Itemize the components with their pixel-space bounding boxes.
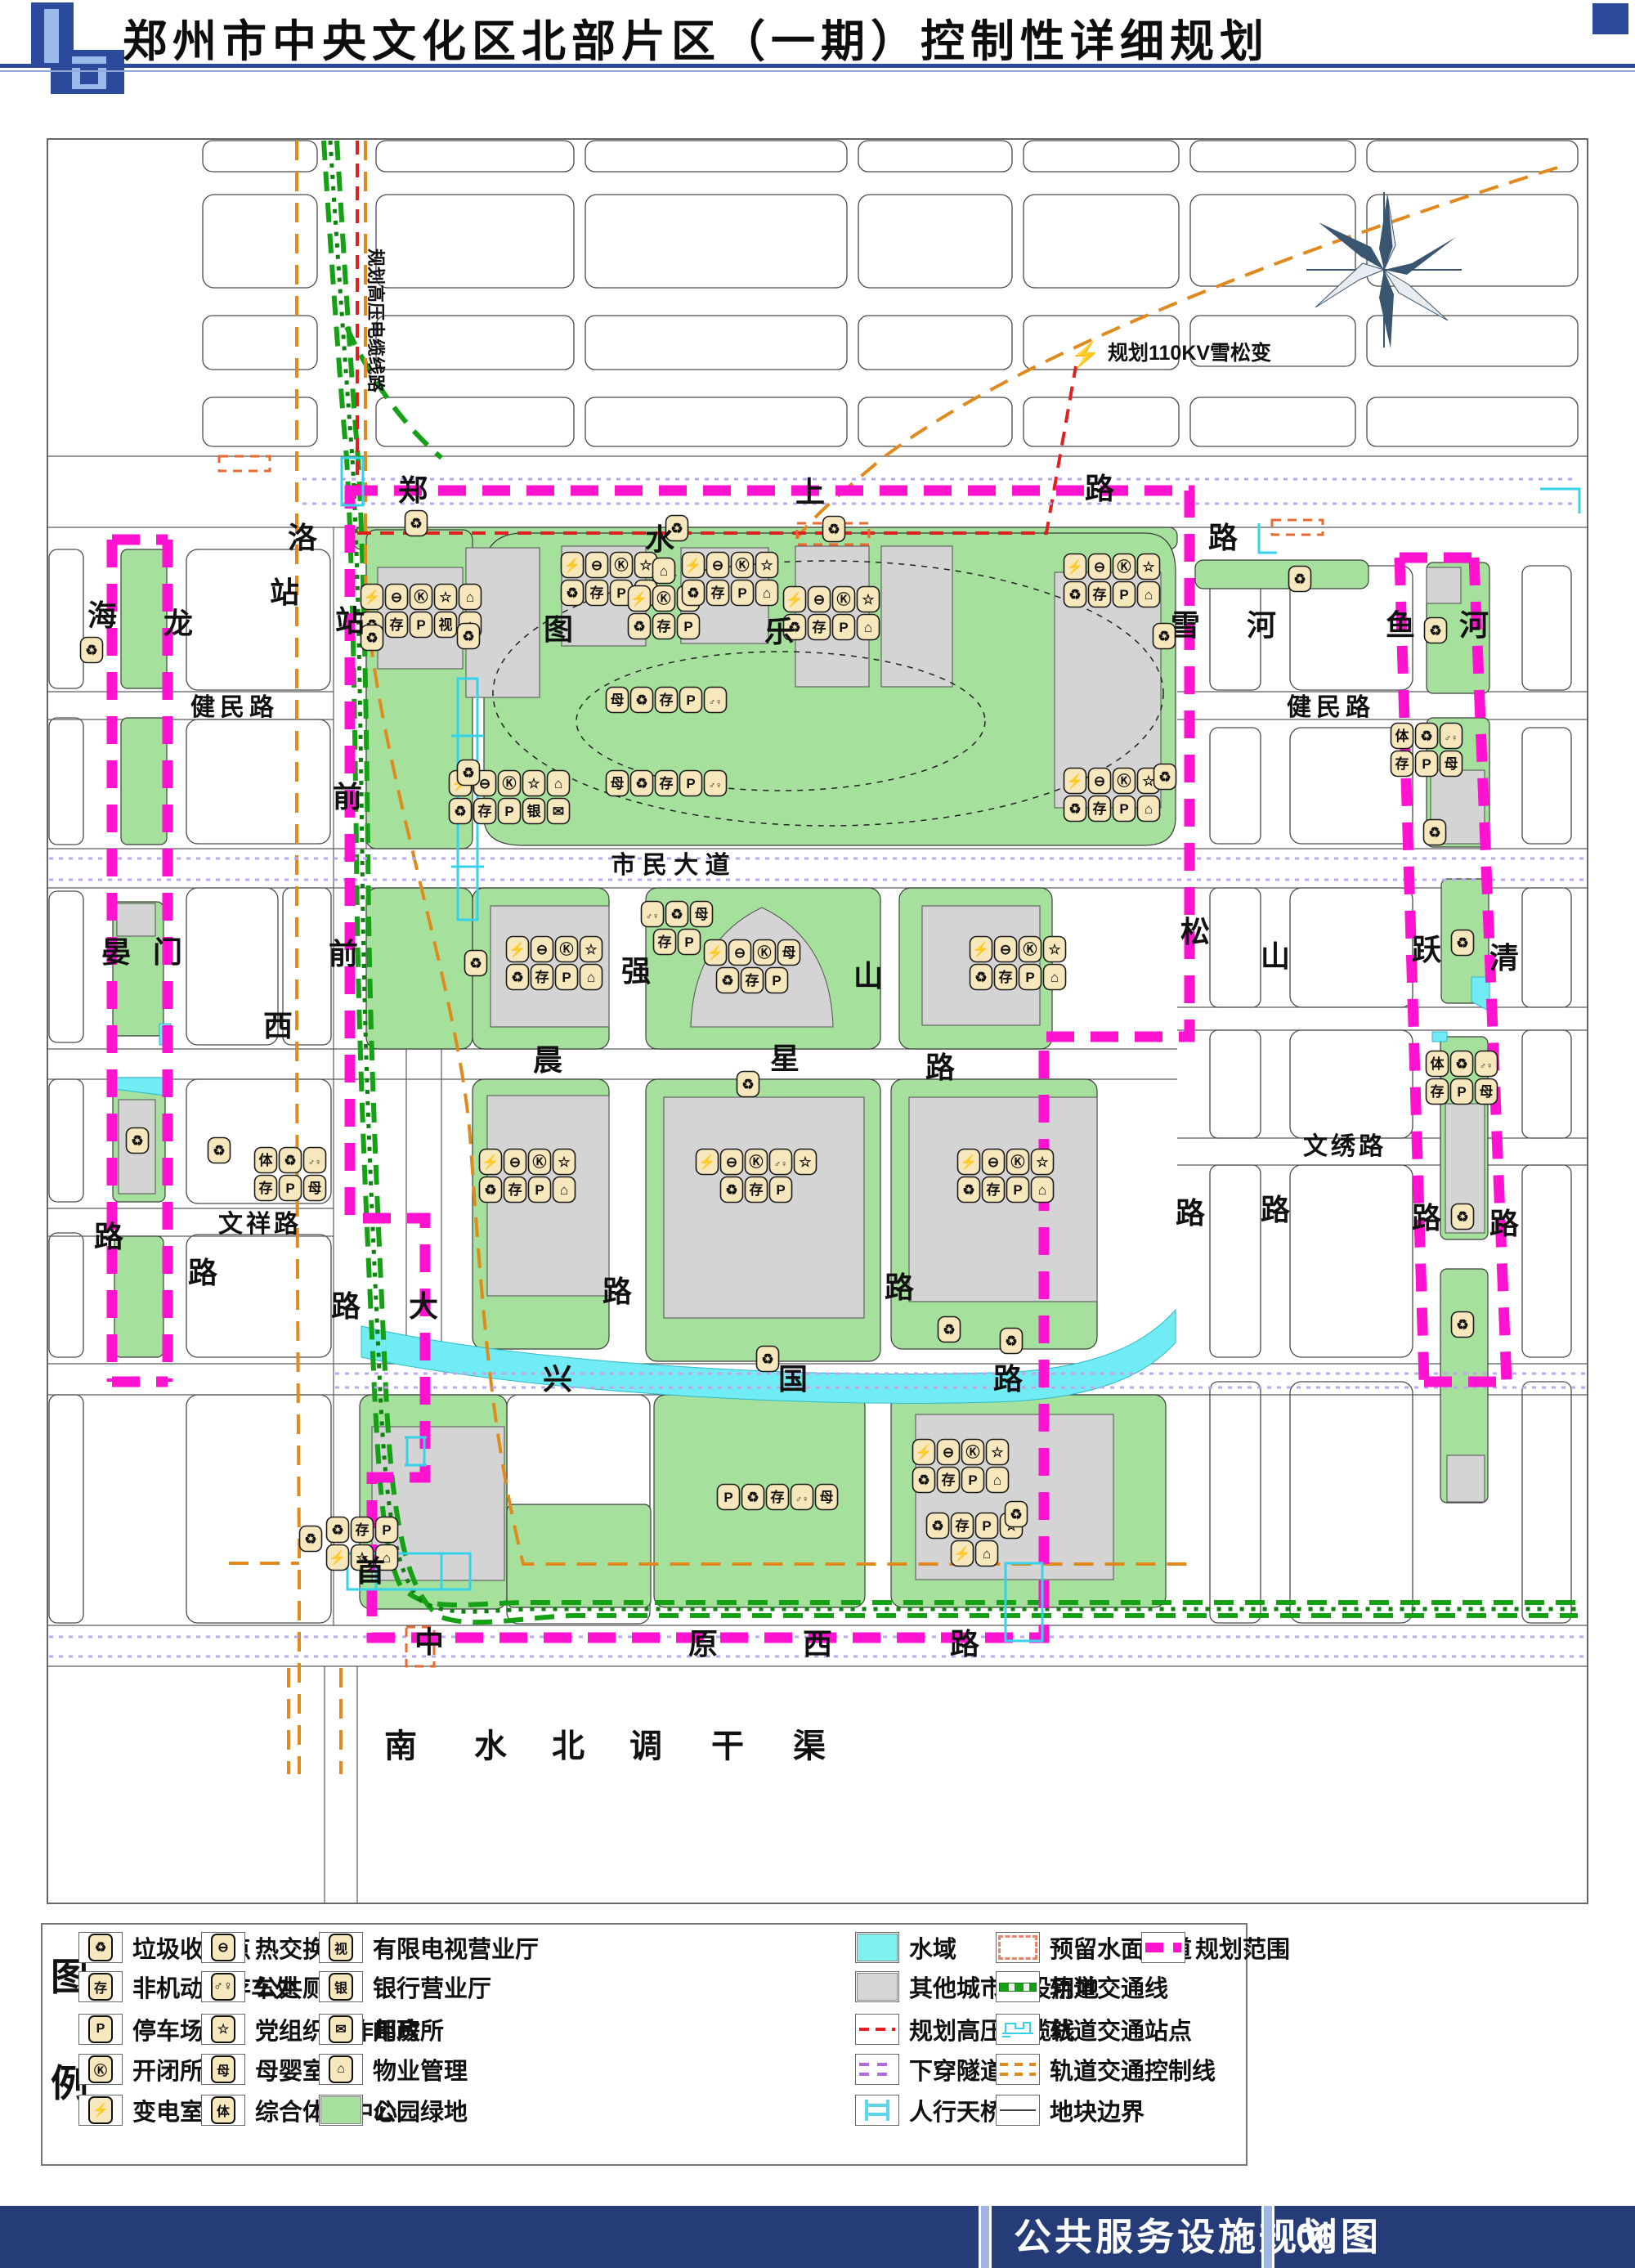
svg-text:♻: ♻ xyxy=(962,1182,974,1198)
svg-text:♻: ♻ xyxy=(635,693,647,708)
svg-text:P: P xyxy=(723,1490,732,1505)
svg-text:⚡: ⚡ xyxy=(706,944,723,961)
legend-symbol-yin: 银 xyxy=(319,1971,363,2002)
svg-text:Ⓚ: Ⓚ xyxy=(1118,773,1131,789)
svg-text:体: 体 xyxy=(1395,728,1410,744)
svg-text:⊖: ⊖ xyxy=(943,1445,954,1460)
svg-text:存: 存 xyxy=(1093,586,1107,603)
svg-text:P: P xyxy=(504,804,513,819)
svg-text:存: 存 xyxy=(590,585,604,601)
map-label: 站 xyxy=(335,604,365,638)
map-label: 路 xyxy=(602,1275,633,1308)
map-label: 水 xyxy=(474,1728,508,1764)
legend-label: 人行天桥 xyxy=(909,2093,1004,2127)
legend-symbol-wu: ⌂ xyxy=(319,2054,363,2085)
svg-text:♻: ♻ xyxy=(511,970,523,985)
svg-text:⊖: ⊖ xyxy=(591,558,602,573)
legend-symbol-bound-magenta xyxy=(1141,1932,1185,1963)
map-label: 星 xyxy=(770,1042,800,1075)
legend-item: 轨道交通控制线 xyxy=(996,2053,1216,2086)
svg-text:⚡: ⚡ xyxy=(363,589,380,606)
svg-text:♻: ♻ xyxy=(454,804,466,819)
svg-text:♻: ♻ xyxy=(1455,1056,1467,1072)
legend-symbol-ce: ♂♀ xyxy=(201,1971,245,2002)
svg-text:存: 存 xyxy=(535,969,549,985)
svg-text:P: P xyxy=(1422,756,1431,772)
svg-text:P: P xyxy=(1013,1182,1022,1198)
svg-text:⊖: ⊖ xyxy=(391,589,402,605)
map-label: 跃 xyxy=(1412,933,1442,966)
svg-text:⊖: ⊖ xyxy=(712,558,723,573)
legend-label: 变电室 xyxy=(132,2093,204,2127)
svg-text:♻: ♻ xyxy=(827,522,840,537)
svg-text:☆: ☆ xyxy=(558,1154,571,1170)
svg-text:♻: ♻ xyxy=(1010,1507,1022,1522)
svg-text:⌂: ⌂ xyxy=(560,1182,568,1198)
map-label: 山 xyxy=(1261,939,1290,973)
footer-bar: 公共服务设施规划图 06 xyxy=(0,2206,1635,2268)
svg-text:♻: ♻ xyxy=(410,516,422,531)
map-label: 海 xyxy=(87,598,117,632)
legend-symbol-bridge xyxy=(855,2095,899,2126)
sheet-title: 公共服务设施规划图 xyxy=(1014,2206,1259,2268)
map-label: 强 xyxy=(621,954,651,988)
svg-text:♻: ♻ xyxy=(1456,1209,1468,1225)
svg-text:♂♀: ♂♀ xyxy=(709,697,723,707)
legend-label: 规划范围 xyxy=(1195,1930,1290,1965)
svg-text:♻: ♻ xyxy=(284,1153,296,1168)
svg-text:P: P xyxy=(686,693,695,708)
svg-text:P: P xyxy=(1119,801,1128,817)
legend-item: ⌂物业管理 xyxy=(319,2053,468,2086)
svg-text:⊖: ⊖ xyxy=(726,1154,737,1170)
svg-text:⊖: ⊖ xyxy=(1094,559,1105,575)
svg-text:♻: ♻ xyxy=(1420,728,1432,744)
map-label: 路 xyxy=(188,1256,218,1289)
map-label: 龙 xyxy=(163,607,193,640)
svg-text:⊖: ⊖ xyxy=(813,592,825,607)
legend-label: 开闭所 xyxy=(132,2052,204,2086)
map-label: ⚡ xyxy=(1070,340,1100,370)
legend-label: 下穿隧道 xyxy=(909,2052,1004,2086)
svg-text:存: 存 xyxy=(660,692,674,708)
svg-text:♻: ♻ xyxy=(331,1522,343,1538)
legend-label: 轨道交通站点 xyxy=(1050,2012,1192,2046)
svg-text:☆: ☆ xyxy=(1142,559,1155,575)
map-label: 松 xyxy=(1180,915,1210,948)
svg-text:♻: ♻ xyxy=(462,765,474,781)
svg-text:P: P xyxy=(1025,970,1034,985)
map-label: 清 xyxy=(1489,941,1519,975)
sheet-number: 06 xyxy=(1296,2206,1336,2268)
svg-text:♂♀: ♂♀ xyxy=(646,912,660,921)
svg-text:♂♀: ♂♀ xyxy=(709,781,723,791)
svg-text:存: 存 xyxy=(750,1181,764,1198)
map-label: 国 xyxy=(778,1362,808,1396)
map-label: 站 xyxy=(270,576,299,609)
legend-symbol-line-thin xyxy=(996,2095,1040,2126)
footer-separator xyxy=(1261,2206,1274,2268)
map-label: 雪 xyxy=(1171,608,1200,642)
svg-text:存: 存 xyxy=(478,803,492,819)
legend-item: Ⓚ开闭所 xyxy=(78,2053,204,2086)
svg-text:♻: ♻ xyxy=(1158,629,1170,644)
legend-item: 规划范围 xyxy=(1141,1931,1290,1964)
svg-text:⚡: ⚡ xyxy=(630,590,647,607)
svg-text:母: 母 xyxy=(820,1490,834,1505)
legend-item: ⚡变电室 xyxy=(78,2094,204,2127)
svg-text:⊖: ⊖ xyxy=(1094,773,1105,789)
map-label: 渠 xyxy=(793,1728,826,1764)
map-label: 郑 xyxy=(398,473,428,507)
map-label: 路 xyxy=(925,1051,956,1084)
svg-text:Ⓚ: Ⓚ xyxy=(1118,558,1131,575)
svg-text:♻: ♻ xyxy=(917,1472,929,1488)
svg-text:♻: ♻ xyxy=(670,907,683,922)
svg-text:⚡: ⚡ xyxy=(960,1154,977,1171)
svg-text:存: 存 xyxy=(658,934,672,950)
legend-item: 轨道交通线 xyxy=(996,1970,1168,2003)
map-label: 河 xyxy=(1459,608,1489,642)
map-label: 晨 xyxy=(533,1043,562,1077)
map-label: 文绣路 xyxy=(1303,1132,1386,1160)
legend-symbol-cun: 存 xyxy=(78,1971,123,2002)
svg-text:⌂: ⌂ xyxy=(1038,1182,1046,1198)
map-label: 西 xyxy=(263,1009,293,1042)
map-label: 河 xyxy=(1247,608,1276,642)
svg-text:存: 存 xyxy=(1431,1083,1445,1100)
legend-label: 邮政所 xyxy=(373,2012,444,2046)
map-label: 路 xyxy=(885,1271,915,1304)
legend-label: 银行营业厅 xyxy=(373,1970,491,2004)
legend-symbol-swatch-gray xyxy=(855,1971,899,2002)
legend-symbol-swatch-water xyxy=(855,1932,899,1963)
map-label: 文祥路 xyxy=(218,1210,302,1238)
svg-text:☆: ☆ xyxy=(760,558,773,573)
legend-symbol-shi: 视 xyxy=(319,1932,363,1963)
svg-text:⊖: ⊖ xyxy=(988,1154,999,1170)
svg-text:⊖: ⊖ xyxy=(536,942,548,957)
svg-text:存: 存 xyxy=(987,1181,1001,1198)
legend-item: 水域 xyxy=(855,1931,956,1964)
map-label: 路 xyxy=(1261,1193,1291,1226)
map-label: 前 xyxy=(333,780,362,814)
svg-text:Ⓚ: Ⓚ xyxy=(414,589,428,605)
svg-text:Ⓚ: Ⓚ xyxy=(1024,941,1037,957)
svg-text:♻: ♻ xyxy=(131,1133,143,1149)
svg-text:P: P xyxy=(1457,1084,1466,1100)
svg-text:♻: ♻ xyxy=(1456,935,1468,951)
map-label: 水 xyxy=(645,522,675,556)
map-label: 规划高压电缆线路 xyxy=(365,249,386,393)
svg-text:⌂: ⌂ xyxy=(1144,801,1153,817)
svg-text:♻: ♻ xyxy=(943,1322,955,1338)
svg-text:P: P xyxy=(684,935,693,950)
svg-text:♻: ♻ xyxy=(566,585,578,601)
map-label: 路 xyxy=(1085,472,1115,505)
svg-text:P: P xyxy=(562,970,571,985)
map-label: 路 xyxy=(1208,521,1239,554)
legend-item: 母母婴室 xyxy=(201,2053,326,2086)
svg-text:P: P xyxy=(416,617,425,633)
svg-text:⌂: ⌂ xyxy=(554,776,562,791)
svg-text:Ⓚ: Ⓚ xyxy=(750,1154,764,1170)
svg-text:Ⓚ: Ⓚ xyxy=(503,775,517,791)
svg-text:♂♀: ♂♀ xyxy=(774,1159,788,1169)
svg-text:☆: ☆ xyxy=(527,776,540,791)
svg-text:♂♀: ♂♀ xyxy=(308,1158,322,1168)
svg-text:存: 存 xyxy=(390,616,404,633)
legend-label: 地块边界 xyxy=(1050,2093,1144,2127)
svg-text:♻: ♻ xyxy=(1428,825,1440,840)
legend-label: 物业管理 xyxy=(373,2052,468,2086)
svg-text:⚡: ⚡ xyxy=(698,1154,715,1171)
svg-text:⚡: ⚡ xyxy=(972,941,989,958)
svg-text:P: P xyxy=(968,1472,977,1488)
svg-text:⊖: ⊖ xyxy=(734,945,746,961)
svg-text:存: 存 xyxy=(356,1522,370,1538)
legend-symbol-dian: ⚡ xyxy=(78,2095,123,2126)
svg-text:⌂: ⌂ xyxy=(660,563,668,579)
svg-text:⚡: ⚡ xyxy=(329,1549,346,1567)
svg-text:存: 存 xyxy=(813,619,826,635)
svg-text:母: 母 xyxy=(308,1181,322,1196)
map-label: 鱼 xyxy=(1386,608,1415,642)
svg-text:⚡: ⚡ xyxy=(1066,558,1083,576)
map-label: 调 xyxy=(629,1728,662,1764)
svg-text:母: 母 xyxy=(1445,756,1458,772)
svg-text:⊖: ⊖ xyxy=(479,776,490,791)
legend-item: 银银行营业厅 xyxy=(319,1970,491,2003)
map-label: 上 xyxy=(795,475,825,509)
legend-symbol-re: ⊖ xyxy=(201,1932,245,1963)
svg-text:视: 视 xyxy=(439,616,453,633)
svg-text:⚡: ⚡ xyxy=(563,557,580,574)
svg-text:P: P xyxy=(535,1182,544,1198)
svg-text:母: 母 xyxy=(611,776,625,791)
legend-symbol-line-purple xyxy=(855,2054,899,2085)
legend-label: 水域 xyxy=(909,1930,956,1965)
svg-text:Ⓚ: Ⓚ xyxy=(560,941,574,957)
map-label: 健民路 xyxy=(1287,694,1375,721)
legend-label: 有限电视营业厅 xyxy=(373,1930,539,1965)
svg-text:存: 存 xyxy=(657,618,671,634)
map-label: 洛 xyxy=(288,521,318,554)
svg-text:♻: ♻ xyxy=(746,1490,759,1505)
svg-text:体: 体 xyxy=(1431,1056,1445,1072)
svg-text:♻: ♻ xyxy=(304,1531,316,1547)
svg-text:♻: ♻ xyxy=(741,1077,754,1092)
legend-item: 公园绿地 xyxy=(319,2094,468,2127)
svg-text:☆: ☆ xyxy=(585,942,598,957)
svg-text:P: P xyxy=(285,1181,294,1196)
legend-label: 母婴室 xyxy=(255,2052,326,2086)
map-label: 健民路 xyxy=(190,694,279,721)
svg-text:⌂: ⌂ xyxy=(1050,970,1059,985)
svg-text:P: P xyxy=(772,973,781,988)
map-label: 路 xyxy=(950,1627,980,1661)
map-label: 路 xyxy=(94,1220,124,1253)
svg-text:♂♀: ♂♀ xyxy=(1445,733,1458,743)
svg-text:存: 存 xyxy=(259,1180,273,1196)
footer-separator xyxy=(979,2206,992,2268)
svg-text:♻: ♻ xyxy=(365,630,378,646)
legend-symbol-line-red xyxy=(855,2014,899,2045)
legend-symbol-dang: ☆ xyxy=(201,2014,245,2045)
map-label: 晏 xyxy=(101,935,131,969)
svg-text:Ⓚ: Ⓚ xyxy=(736,557,750,573)
svg-text:⌂: ⌂ xyxy=(466,589,474,605)
svg-text:母: 母 xyxy=(1480,1084,1494,1100)
svg-text:♻: ♻ xyxy=(1068,801,1081,817)
svg-text:Ⓚ: Ⓚ xyxy=(657,590,671,607)
map-label: 原 xyxy=(688,1627,718,1661)
legend-symbol-line-orange xyxy=(996,2054,1040,2085)
svg-text:♻: ♻ xyxy=(469,956,482,971)
svg-text:☆: ☆ xyxy=(639,558,652,573)
legend-symbol-you: ✉ xyxy=(319,2014,363,2045)
svg-text:♻: ♻ xyxy=(725,1182,737,1198)
legend-symbol-ti: 体 xyxy=(201,2095,245,2126)
map-label: 西 xyxy=(803,1627,832,1661)
svg-text:⊖: ⊖ xyxy=(1000,942,1011,957)
svg-text:☆: ☆ xyxy=(1036,1154,1049,1170)
svg-text:♻: ♻ xyxy=(1429,623,1441,639)
svg-text:♻: ♻ xyxy=(1158,769,1171,785)
legend-label: 公园绿地 xyxy=(373,2093,468,2127)
legend-symbol-rail-green xyxy=(996,1971,1040,2002)
svg-text:⚡: ⚡ xyxy=(953,1545,970,1562)
legend-symbol-la: ♻ xyxy=(78,1932,123,1963)
svg-text:♻: ♻ xyxy=(1005,1333,1017,1349)
svg-text:⌂: ⌂ xyxy=(1144,587,1153,603)
svg-text:银: 银 xyxy=(527,803,542,819)
map-label: 大 xyxy=(409,1289,438,1323)
map-label: 山 xyxy=(853,959,883,993)
svg-text:P: P xyxy=(1119,587,1128,603)
svg-text:P: P xyxy=(616,585,625,601)
svg-text:存: 存 xyxy=(711,585,725,601)
svg-text:存: 存 xyxy=(942,1472,956,1488)
legend-label: 轨道交通控制线 xyxy=(1050,2052,1216,2086)
svg-text:Ⓚ: Ⓚ xyxy=(533,1154,547,1170)
svg-text:P: P xyxy=(776,1182,785,1198)
svg-text:存: 存 xyxy=(956,1517,970,1534)
map-label: 路 xyxy=(1176,1196,1206,1230)
legend-symbol-ting: P xyxy=(78,2014,123,2045)
svg-text:⌂: ⌂ xyxy=(864,620,872,635)
svg-text:存: 存 xyxy=(999,969,1013,985)
svg-text:母: 母 xyxy=(695,907,709,922)
map-label: 路 xyxy=(1412,1201,1442,1235)
svg-text:⚡: ⚡ xyxy=(915,1444,932,1461)
svg-text:Ⓚ: Ⓚ xyxy=(758,944,772,961)
legend-item: 视有限电视营业厅 xyxy=(319,1931,539,1964)
svg-text:P: P xyxy=(382,1522,391,1538)
svg-text:体: 体 xyxy=(259,1152,274,1168)
svg-text:⌂: ⌂ xyxy=(983,1546,991,1562)
svg-text:存: 存 xyxy=(660,775,674,791)
svg-text:♻: ♻ xyxy=(462,629,474,644)
legend-symbol-rect-orange xyxy=(996,1932,1040,1963)
svg-text:♻: ♻ xyxy=(484,1182,496,1198)
svg-text:♂♀: ♂♀ xyxy=(795,1495,809,1504)
svg-text:存: 存 xyxy=(508,1181,522,1198)
legend-symbol-station-cyan xyxy=(996,2014,1040,2045)
svg-text:⚡: ⚡ xyxy=(786,591,803,608)
svg-text:⚡: ⚡ xyxy=(684,557,701,574)
svg-text:☆: ☆ xyxy=(439,589,452,605)
legend-item: ✉邮政所 xyxy=(319,2013,444,2046)
legend-item: 地块边界 xyxy=(996,2094,1144,2127)
map-label: 前 xyxy=(329,937,358,970)
svg-text:存: 存 xyxy=(1395,755,1409,772)
svg-text:Ⓚ: Ⓚ xyxy=(837,591,851,607)
svg-text:♻: ♻ xyxy=(1068,587,1081,603)
map-label: 规划110KV雪松变 xyxy=(1108,341,1271,365)
svg-text:☆: ☆ xyxy=(991,1445,1004,1460)
map-label: 乐 xyxy=(764,615,794,648)
legend-label: 轨道交通线 xyxy=(1050,1970,1168,2004)
svg-text:♻: ♻ xyxy=(635,776,647,791)
map-label: 门 xyxy=(153,935,182,969)
svg-text:⌂: ⌂ xyxy=(587,970,595,985)
svg-text:☆: ☆ xyxy=(799,1154,812,1170)
map-label: 图 xyxy=(544,612,573,646)
map-label: 路 xyxy=(993,1362,1024,1396)
map-label: 市 民 大 道 xyxy=(611,851,729,879)
svg-text:✉: ✉ xyxy=(553,804,564,819)
map-label: 北 xyxy=(552,1728,585,1764)
svg-text:⌂: ⌂ xyxy=(993,1472,1001,1488)
svg-text:♻: ♻ xyxy=(1456,1317,1468,1333)
map-label: 首 xyxy=(356,1554,385,1588)
map-label: 路 xyxy=(331,1289,361,1323)
svg-text:P: P xyxy=(683,619,692,634)
svg-text:存: 存 xyxy=(746,972,759,988)
svg-text:♻: ♻ xyxy=(633,619,645,634)
map-label: 中 xyxy=(414,1625,444,1659)
svg-text:☆: ☆ xyxy=(1048,942,1061,957)
map-label: 路 xyxy=(1489,1207,1520,1240)
svg-text:P: P xyxy=(982,1518,991,1534)
svg-text:♻: ♻ xyxy=(721,973,733,988)
svg-text:⊖: ⊖ xyxy=(509,1154,521,1170)
svg-text:P: P xyxy=(839,620,848,635)
legend-symbol-kai: Ⓚ xyxy=(78,2054,123,2085)
map-label: 干 xyxy=(711,1728,744,1764)
legend-item: 下穿隧道 xyxy=(855,2053,1004,2086)
legend-symbol-mu: 母 xyxy=(201,2054,245,2085)
svg-text:⚡: ⚡ xyxy=(482,1154,499,1171)
legend-item: 人行天桥 xyxy=(855,2094,1004,2127)
svg-text:♂♀: ♂♀ xyxy=(1480,1061,1494,1071)
svg-text:母: 母 xyxy=(782,945,796,961)
svg-text:P: P xyxy=(686,776,695,791)
svg-text:存: 存 xyxy=(1093,800,1107,817)
svg-text:母: 母 xyxy=(611,693,625,708)
svg-text:Ⓚ: Ⓚ xyxy=(615,557,629,573)
svg-text:☆: ☆ xyxy=(862,592,875,607)
svg-text:♻: ♻ xyxy=(213,1143,225,1159)
svg-text:♻: ♻ xyxy=(687,585,699,601)
svg-text:Ⓚ: Ⓚ xyxy=(1011,1154,1025,1170)
svg-text:存: 存 xyxy=(771,1489,785,1505)
svg-text:Ⓚ: Ⓚ xyxy=(966,1444,980,1460)
svg-text:⚡: ⚡ xyxy=(508,941,526,958)
svg-text:♻: ♻ xyxy=(85,643,97,658)
svg-text:♻: ♻ xyxy=(1293,571,1306,587)
